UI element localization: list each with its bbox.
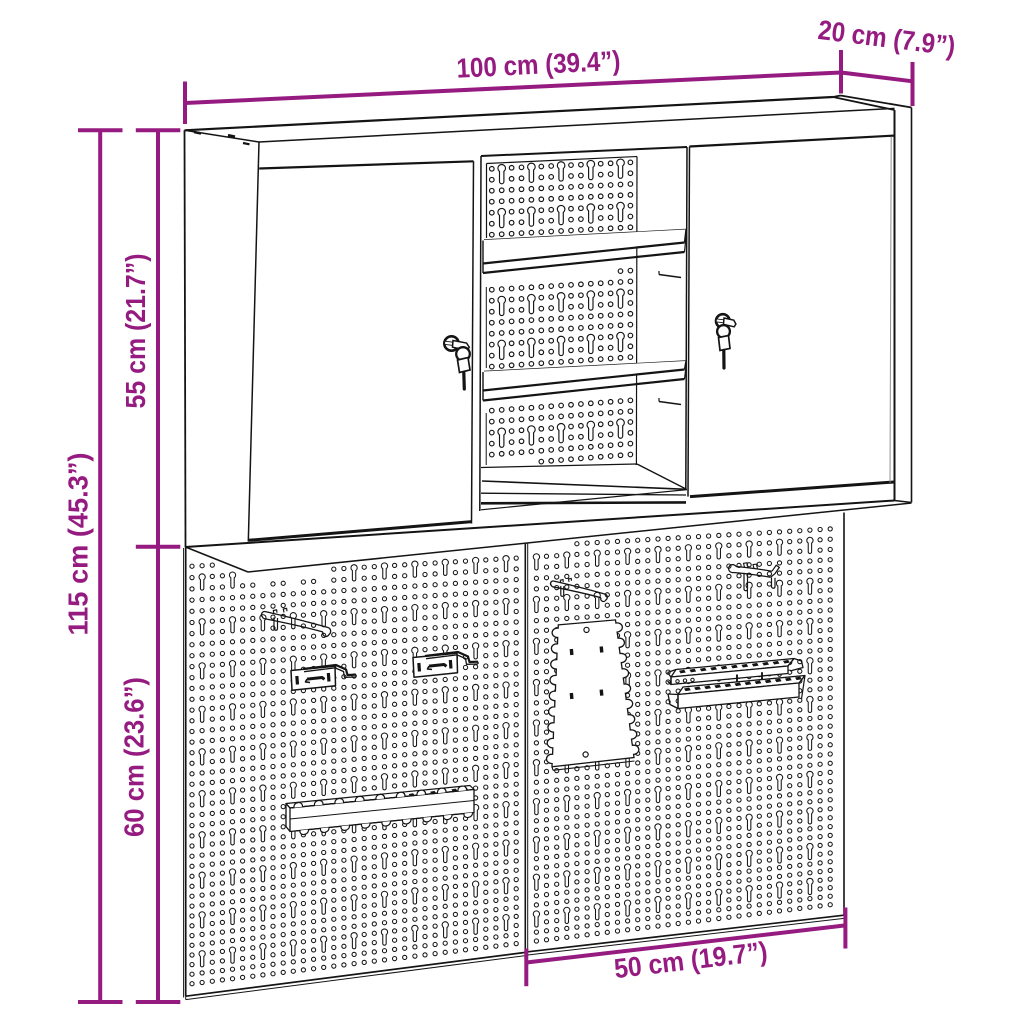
- svg-text:55 cm (21.7”): 55 cm (21.7”): [120, 254, 151, 409]
- svg-text:115 cm (45.3”): 115 cm (45.3”): [62, 453, 93, 636]
- svg-text:60 cm (23.6”): 60 cm (23.6”): [118, 677, 149, 837]
